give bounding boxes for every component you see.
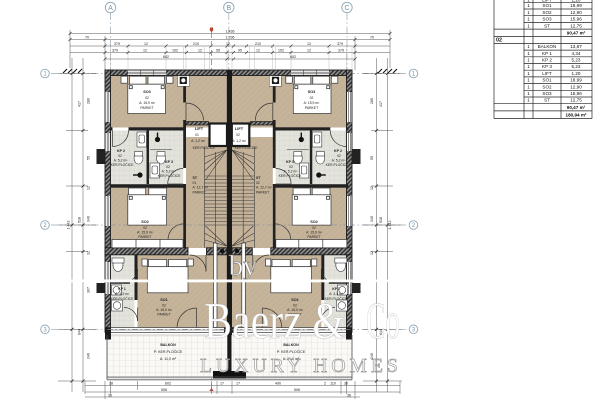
svg-text:ST: ST [256, 176, 261, 180]
svg-text:A: 15,9 m²: A: 15,9 m² [306, 231, 323, 235]
svg-text:ST: ST [544, 98, 550, 103]
svg-text:13,87: 13,87 [570, 44, 582, 49]
svg-text:518: 518 [78, 217, 82, 223]
svg-text:A: 11,0 m²: A: 11,0 m² [160, 357, 177, 361]
svg-text:180,94 m²: 180,94 m² [566, 113, 587, 118]
svg-text:by: by [229, 251, 257, 282]
svg-text:506: 506 [161, 388, 167, 392]
svg-text:12: 12 [143, 49, 147, 53]
svg-text:12: 12 [370, 251, 374, 255]
svg-text:A: 1,2 m²: A: 1,2 m² [232, 139, 247, 143]
svg-text:1: 1 [527, 3, 530, 8]
svg-text:01: 01 [193, 181, 197, 185]
svg-text:PARKET: PARKET [157, 313, 170, 317]
svg-text:17: 17 [236, 382, 240, 386]
svg-text:102: 102 [172, 49, 178, 53]
svg-text:1: 1 [527, 51, 530, 56]
svg-text:KP 2: KP 2 [117, 149, 125, 153]
svg-text:A: 5,2 m²: A: 5,2 m² [284, 170, 299, 174]
svg-text:95: 95 [238, 49, 242, 53]
svg-text:12: 12 [87, 186, 91, 190]
svg-text:02: 02 [162, 304, 166, 308]
svg-text:Baerz &: Baerz & [204, 293, 345, 350]
svg-text:KER.PLOČICE: KER.PLOČICE [111, 162, 135, 167]
svg-text:02: 02 [236, 133, 240, 137]
svg-text:A: 12,7 m²: A: 12,7 m² [256, 186, 273, 190]
svg-text:SO2: SO2 [542, 10, 552, 15]
svg-text:LIFT: LIFT [235, 126, 244, 131]
svg-text:PARKET: PARKET [305, 106, 318, 110]
svg-text:5,23: 5,23 [572, 58, 581, 63]
svg-text:KP 3: KP 3 [542, 64, 552, 69]
svg-text:18,99: 18,99 [570, 78, 582, 83]
svg-text:02: 02 [256, 181, 260, 185]
svg-text:KP 2: KP 2 [334, 149, 342, 153]
svg-text:KER.PLOČICE: KER.PLOČICE [279, 173, 303, 178]
svg-text:KP 3: KP 3 [286, 160, 294, 164]
svg-text:SO2: SO2 [542, 84, 552, 89]
svg-text:KP 3: KP 3 [165, 160, 173, 164]
svg-text:1: 1 [527, 10, 530, 15]
svg-text:506: 506 [294, 388, 300, 392]
svg-text:379: 379 [114, 42, 120, 46]
svg-text:02: 02 [310, 96, 314, 100]
svg-text:SO3: SO3 [542, 17, 552, 22]
svg-text:28: 28 [109, 382, 113, 386]
svg-text:SO1: SO1 [542, 3, 552, 8]
svg-text:70: 70 [370, 36, 374, 40]
svg-text:307: 307 [87, 287, 91, 293]
svg-text:55: 55 [87, 156, 91, 160]
svg-text:12,75: 12,75 [570, 23, 582, 28]
svg-text:12: 12 [198, 49, 202, 53]
svg-text:518: 518 [379, 217, 383, 223]
svg-text:02: 02 [496, 38, 502, 44]
svg-text:ST: ST [193, 176, 198, 180]
svg-text:SO1: SO1 [542, 78, 552, 83]
svg-text:02: 02 [289, 165, 293, 169]
svg-text:12,75: 12,75 [570, 98, 582, 103]
svg-text:15,96: 15,96 [570, 91, 582, 96]
svg-text:A: 5,2 m²: A: 5,2 m² [162, 170, 177, 174]
svg-text:B: B [226, 5, 231, 12]
svg-text:340: 340 [370, 216, 374, 222]
svg-text:SO2: SO2 [141, 220, 149, 224]
svg-text:SO3: SO3 [308, 90, 316, 94]
svg-text:KP 1: KP 1 [332, 287, 340, 291]
svg-text:110: 110 [330, 382, 336, 386]
svg-text:490: 490 [275, 382, 281, 386]
svg-text:340: 340 [87, 216, 91, 222]
svg-text:A: 5,2 m²: A: 5,2 m² [114, 159, 129, 163]
svg-text:02: 02 [166, 165, 170, 169]
svg-text:17: 17 [220, 382, 224, 386]
svg-text:PARKET: PARKET [193, 190, 206, 194]
svg-text:1: 1 [527, 71, 530, 76]
svg-text:240: 240 [87, 353, 91, 359]
svg-text:1: 1 [527, 84, 530, 89]
svg-text:KP 2: KP 2 [542, 58, 552, 63]
svg-text:A: A [108, 5, 113, 12]
svg-text:1.442: 1.442 [67, 221, 71, 230]
svg-text:280: 280 [87, 98, 91, 104]
svg-text:95: 95 [216, 49, 220, 53]
svg-text:4,34: 4,34 [572, 51, 581, 56]
svg-text:1.442: 1.442 [388, 221, 392, 230]
svg-text:210: 210 [255, 42, 261, 46]
svg-text:379: 379 [338, 49, 344, 53]
svg-text:210: 210 [193, 42, 199, 46]
svg-text:SO3: SO3 [542, 91, 552, 96]
svg-text:A: 12,7 m²: A: 12,7 m² [193, 186, 210, 190]
svg-text:55: 55 [370, 156, 374, 160]
svg-text:1: 1 [527, 58, 530, 63]
svg-text:90,47 m²: 90,47 m² [567, 105, 586, 110]
svg-text:602: 602 [290, 55, 296, 59]
svg-text:KER.PLOČICE: KER.PLOČICE [111, 296, 135, 301]
svg-text:379: 379 [112, 49, 118, 53]
svg-text:1: 1 [527, 23, 530, 28]
svg-text:12,90: 12,90 [570, 84, 582, 89]
svg-text:02: 02 [143, 226, 147, 230]
svg-text:5,23: 5,23 [572, 64, 581, 69]
svg-text:BALKON: BALKON [538, 44, 557, 49]
svg-text:A: 16,0 m²: A: 16,0 m² [156, 308, 173, 312]
svg-text:1: 1 [527, 98, 530, 103]
svg-text:90,47 m²: 90,47 m² [567, 30, 586, 35]
svg-text:36: 36 [344, 382, 348, 386]
svg-text:1: 1 [527, 44, 530, 49]
svg-text:379: 379 [337, 42, 343, 46]
svg-text:02: 02 [145, 96, 149, 100]
svg-text:P: KER.PLOČICE: P: KER.PLOČICE [154, 349, 183, 354]
svg-text:417: 417 [379, 101, 383, 107]
svg-text:KP 1: KP 1 [542, 51, 552, 56]
svg-text:PARKET: PARKET [256, 190, 269, 194]
svg-text:12: 12 [307, 42, 311, 46]
svg-text:KER.PLOČICE: KER.PLOČICE [193, 145, 217, 150]
svg-text:SO3: SO3 [143, 90, 151, 94]
svg-text:12: 12 [87, 251, 91, 255]
svg-text:02: 02 [312, 226, 316, 230]
svg-text:417: 417 [78, 101, 82, 107]
svg-text:Co: Co [366, 293, 400, 350]
svg-text:12: 12 [256, 49, 260, 53]
svg-text:A: 4,3 m²: A: 4,3 m² [115, 292, 130, 296]
svg-text:SO2: SO2 [310, 220, 318, 224]
svg-text:602: 602 [163, 55, 169, 59]
svg-text:36: 36 [347, 393, 351, 397]
svg-text:ST: ST [544, 23, 550, 28]
svg-text:A: 15,9 m²: A: 15,9 m² [137, 231, 154, 235]
svg-text:12: 12 [226, 42, 230, 46]
svg-text:01: 01 [195, 133, 199, 137]
svg-text:A: 1,2 m²: A: 1,2 m² [191, 139, 206, 143]
svg-text:1: 1 [527, 64, 530, 69]
svg-text:1: 1 [527, 17, 530, 22]
svg-text:KP 1: KP 1 [118, 287, 126, 291]
svg-text:280: 280 [370, 98, 374, 104]
svg-text:12: 12 [370, 186, 374, 190]
svg-text:KER.PLOČICE: KER.PLOČICE [235, 145, 259, 150]
svg-text:602: 602 [165, 382, 171, 386]
svg-text:1.436: 1.436 [226, 30, 235, 34]
svg-text:KER.PLOČICE: KER.PLOČICE [326, 162, 350, 167]
svg-text:LIFT: LIFT [542, 71, 552, 76]
svg-text:A: 15,9 m²: A: 15,9 m² [139, 101, 156, 105]
svg-text:C: C [344, 5, 349, 12]
svg-text:PARKET: PARKET [140, 106, 153, 110]
svg-text:12,90: 12,90 [570, 10, 582, 15]
svg-text:1,20: 1,20 [572, 71, 581, 76]
svg-text:A: 5,2 m²: A: 5,2 m² [332, 159, 347, 163]
svg-text:15,96: 15,96 [570, 17, 582, 22]
svg-text:02: 02 [337, 154, 341, 158]
svg-text:LIFT: LIFT [195, 126, 204, 131]
svg-text:36: 36 [108, 393, 112, 397]
svg-text:644: 644 [78, 329, 82, 335]
svg-text:KER.PLOČICE: KER.PLOČICE [158, 173, 182, 178]
svg-text:2: 2 [324, 382, 326, 386]
svg-text:70: 70 [85, 36, 89, 40]
svg-text:18,99: 18,99 [570, 3, 582, 8]
svg-text:BALKON: BALKON [160, 343, 176, 347]
svg-text:102: 102 [278, 49, 284, 53]
svg-text:1: 1 [527, 78, 530, 83]
svg-text:12: 12 [144, 42, 148, 46]
svg-text:LUXURY HOMES: LUXURY HOMES [200, 356, 402, 377]
svg-text:SO1: SO1 [160, 298, 168, 302]
svg-text:1.296: 1.296 [226, 36, 235, 40]
svg-text:PARKET: PARKET [138, 235, 151, 239]
svg-text:A: 15,9 m²: A: 15,9 m² [304, 101, 321, 105]
svg-text:02: 02 [118, 154, 122, 158]
svg-text:1: 1 [527, 91, 530, 96]
svg-text:PARKET: PARKET [307, 235, 320, 239]
svg-text:12: 12 [307, 49, 311, 53]
